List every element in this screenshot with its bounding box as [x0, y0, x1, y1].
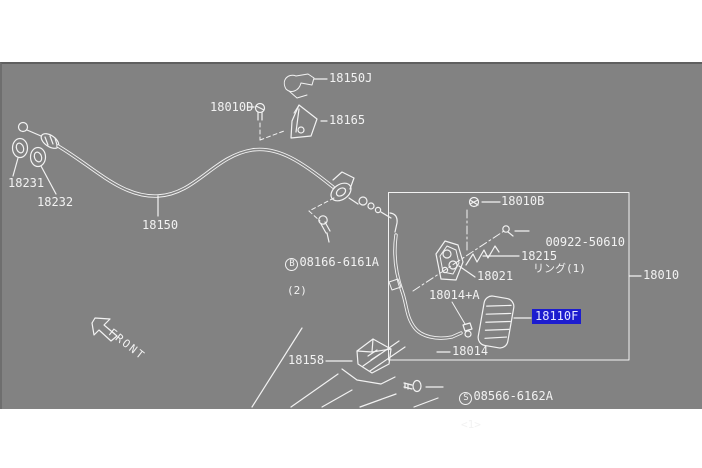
- part-label-18010D[interactable]: 18010D: [210, 101, 253, 114]
- part-label-08566-6162A[interactable]: S08566-6162A <1>: [445, 377, 553, 444]
- part-label-08166-6161A[interactable]: B08166-6161A (2): [271, 243, 379, 310]
- floor-and-stopper-drawing: [252, 328, 443, 407]
- part-label-18014A[interactable]: 18014+A: [429, 289, 480, 302]
- part-label-18165[interactable]: 18165: [329, 114, 365, 127]
- circled-s-icon: S: [459, 392, 472, 405]
- part-label-18215[interactable]: 18215: [521, 250, 557, 263]
- part-number: 08566-6162A: [473, 389, 552, 403]
- cable-drawing: [13, 123, 392, 243]
- ring-note: リング(1): [531, 262, 625, 275]
- part-label-18150[interactable]: 18150: [142, 219, 178, 232]
- part-label-18110F-highlighted[interactable]: 18110F: [532, 309, 581, 324]
- part-label-18150J[interactable]: 18150J: [329, 72, 372, 85]
- part-label-18232[interactable]: 18232: [37, 196, 73, 209]
- part-label-18021[interactable]: 18021: [477, 270, 513, 283]
- part-label-18158[interactable]: 18158: [288, 354, 324, 367]
- part-label-18010B[interactable]: 18010B: [501, 195, 544, 208]
- quantity: <1>: [445, 418, 553, 431]
- part-number: 08166-6161A: [299, 255, 378, 269]
- mount-brackets-drawing: [248, 74, 327, 140]
- part-label-18010[interactable]: 18010: [643, 269, 679, 282]
- part-label-18231[interactable]: 18231: [8, 177, 44, 190]
- circled-b-icon: B: [285, 258, 298, 271]
- part-number: 00922-50610: [545, 235, 624, 249]
- quantity: (2): [271, 284, 379, 297]
- part-label-18014[interactable]: 18014: [452, 345, 488, 358]
